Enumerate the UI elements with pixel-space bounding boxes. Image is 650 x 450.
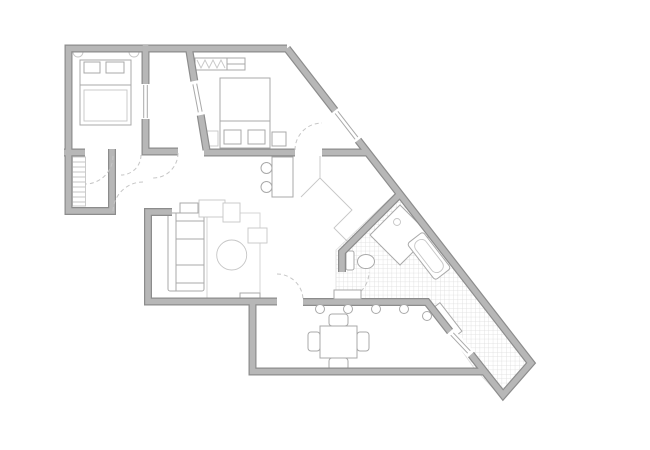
railing-post-4: [400, 305, 409, 314]
coffee-table: [217, 240, 247, 270]
wall-bedroom1-east: [146, 45, 179, 152]
shower-drain: [394, 219, 401, 226]
floorplan-svg: [0, 0, 650, 450]
nightstand-right: [272, 132, 286, 146]
door-arc-bedroom1: [121, 155, 141, 175]
toilet-bowl: [358, 255, 375, 269]
vestibule-closet-edge: [301, 156, 320, 197]
desk-chair-bottom: [261, 182, 272, 193]
sofa-side-table: [180, 203, 198, 213]
closet-shelves: [73, 157, 86, 206]
railing-post-2: [344, 305, 353, 314]
bed-1-duvet: [84, 90, 127, 121]
sconce-arc-left: [73, 52, 83, 57]
floor-plan: [0, 0, 650, 450]
dining-chair-west: [308, 332, 320, 351]
vestibule-closet-front: [320, 178, 352, 245]
bed-1-pillow-right: [106, 62, 124, 73]
sconce-arc-right: [129, 52, 139, 57]
door-arc-bedroom2: [295, 123, 322, 150]
door-arc-hall-to-living: [113, 182, 143, 212]
sofa: [168, 213, 204, 291]
armchair-north-b: [223, 203, 240, 222]
side-square-table: [248, 228, 267, 243]
toilet-tank: [346, 251, 354, 270]
terrace-door-sill: [334, 290, 361, 299]
wall-bedroom1-east-edge: [146, 45, 179, 152]
dining-chair-north: [329, 314, 348, 326]
door-arc-hall-east: [153, 153, 178, 178]
bed-2-pillow-right: [248, 130, 265, 144]
dining-chair-east: [357, 332, 369, 351]
bed-2-pillow-left: [224, 130, 241, 144]
railing-post-1: [316, 305, 325, 314]
desk: [272, 157, 293, 197]
window-exterior-diagonal-gap: [335, 111, 358, 141]
wall-exterior-diagonal-upper: [287, 49, 337, 113]
dining-table: [320, 326, 357, 358]
railing-post-3: [372, 305, 381, 314]
armchair-north-a: [199, 200, 225, 217]
bed-1-pillow-left: [84, 62, 100, 73]
wall-living-west-south: [148, 212, 277, 302]
desk-chair-top: [261, 163, 272, 174]
wall-living-west-south-edge: [148, 212, 277, 302]
door-arc-living-dining: [277, 274, 303, 300]
railing-post-5: [423, 312, 432, 321]
